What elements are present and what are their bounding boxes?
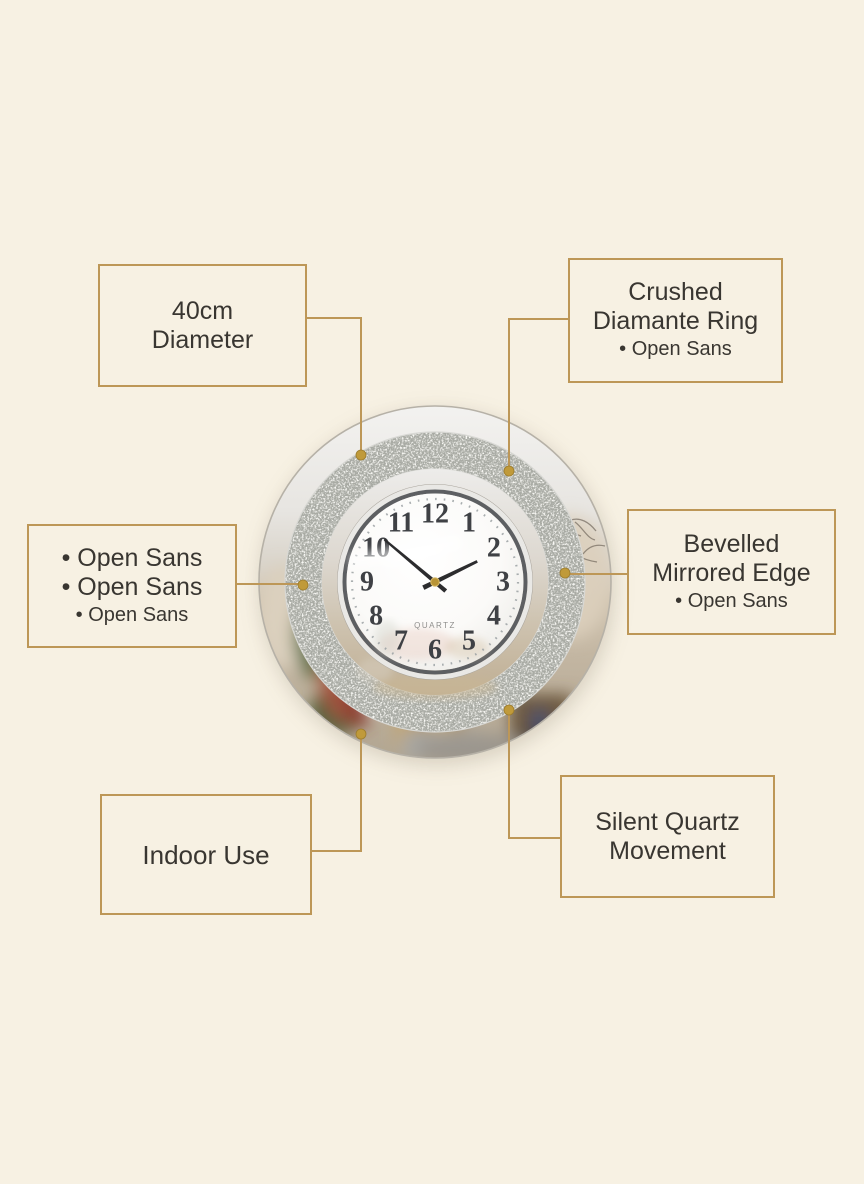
callout-silent-quartz-movement: Silent Quartz Movement — [560, 775, 775, 898]
numeral-8: 8 — [369, 601, 383, 632]
numeral-1: 1 — [462, 508, 476, 539]
numeral-9: 9 — [360, 567, 374, 598]
quartz-label: QUARTZ — [414, 621, 456, 630]
numeral-5: 5 — [462, 625, 476, 656]
numeral-4: 4 — [487, 601, 501, 632]
callout-indoor-use: Indoor Use — [100, 794, 312, 915]
callout-bullet-line: • Open Sans — [76, 602, 189, 629]
callout-line: Crushed — [628, 278, 723, 307]
callout-bullet-line: • Open Sans — [675, 588, 788, 615]
infographic-canvas: 12 1 2 3 4 5 6 7 8 9 10 11 QUARTZ — [0, 0, 864, 1184]
callout-line: 40cm — [172, 297, 233, 326]
wall-clock-image: 12 1 2 3 4 5 6 7 8 9 10 11 QUARTZ — [258, 405, 612, 759]
numeral-7: 7 — [394, 625, 408, 656]
callout-line: Mirrored Edge — [652, 559, 810, 588]
callout-open-sans-list: • Open Sans • Open Sans • Open Sans — [27, 524, 237, 648]
callout-line: Bevelled — [684, 530, 780, 559]
callout-crushed-diamante-ring: Crushed Diamante Ring • Open Sans — [568, 258, 783, 383]
numeral-3: 3 — [496, 567, 510, 598]
hand-center-cap — [431, 578, 440, 587]
numeral-12: 12 — [421, 499, 449, 530]
callout-line: Indoor Use — [142, 840, 269, 870]
callout-bevelled-mirrored-edge: Bevelled Mirrored Edge • Open Sans — [627, 509, 836, 635]
callout-line: Diameter — [152, 326, 253, 355]
numeral-11: 11 — [388, 508, 414, 539]
callout-line: Diamante Ring — [593, 307, 758, 336]
numeral-6: 6 — [428, 635, 442, 666]
callout-bullet-line: • Open Sans — [619, 336, 732, 363]
callout-diameter: 40cm Diameter — [98, 264, 307, 387]
numeral-2: 2 — [487, 533, 501, 564]
callout-bullet-line: • Open Sans — [62, 573, 203, 602]
callout-line: Movement — [609, 837, 726, 866]
callout-bullet-line: • Open Sans — [62, 544, 203, 573]
callout-line: Silent Quartz — [595, 808, 740, 837]
